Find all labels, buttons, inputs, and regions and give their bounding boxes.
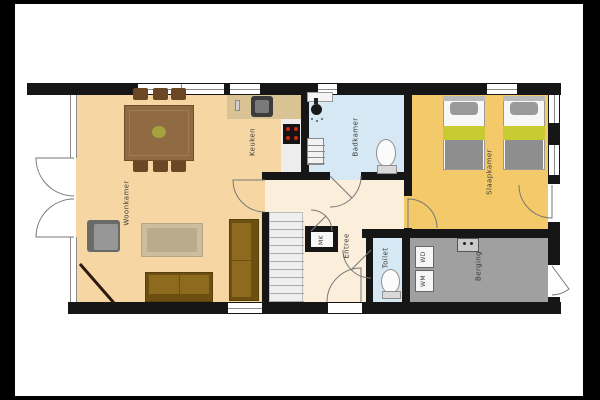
room-label-slaapkamer: Slaapkamer bbox=[487, 149, 494, 195]
bedroom-right-door-arc bbox=[519, 185, 552, 218]
room-label-badkamer: Badkamer bbox=[353, 118, 360, 157]
appliance-label-wd: WD bbox=[421, 251, 427, 262]
berging-door-arc bbox=[552, 266, 569, 295]
appliance-label-wm: WM bbox=[421, 275, 427, 287]
french-door-top-arc bbox=[36, 158, 74, 196]
bedroom-door-arc bbox=[408, 199, 437, 228]
living-door-arc bbox=[233, 180, 265, 212]
section-line bbox=[80, 264, 114, 303]
room-label-keuken: Keuken bbox=[250, 128, 257, 156]
bath-door-arc bbox=[330, 176, 361, 207]
room-label-woonkamer: Woonkamer bbox=[124, 180, 131, 225]
room-label-mk: MK bbox=[319, 235, 325, 245]
room-label-entree: Entree bbox=[344, 233, 351, 258]
room-label-toilet: Toilet bbox=[383, 248, 390, 269]
floor-plan: WoonkamerKeukenBadkamerSlaapkamerEntreeT… bbox=[0, 0, 600, 400]
french-door-bottom-arc bbox=[36, 199, 74, 237]
room-label-berging: Berging bbox=[476, 251, 483, 281]
mk-door-arc bbox=[311, 210, 332, 231]
door-swing-overlay bbox=[0, 0, 600, 400]
